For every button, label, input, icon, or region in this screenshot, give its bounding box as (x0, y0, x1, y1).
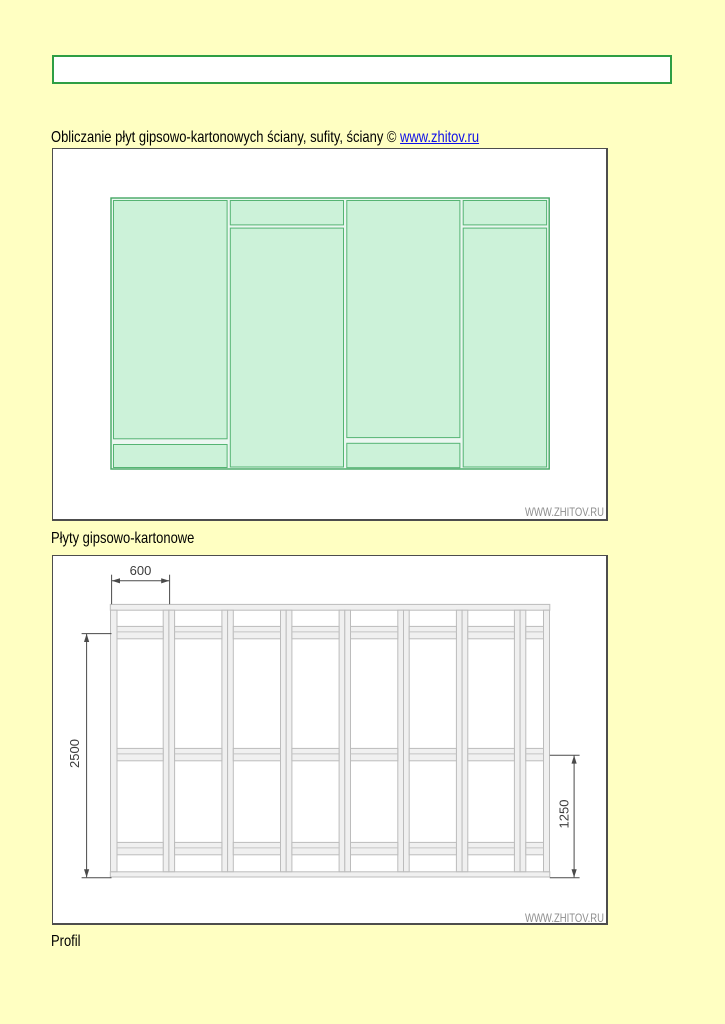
svg-text:WWW.ZHITOV.RU: WWW.ZHITOV.RU (525, 911, 604, 925)
svg-text:1250: 1250 (557, 800, 572, 829)
svg-text:WWW.ZHITOV.RU: WWW.ZHITOV.RU (525, 505, 604, 519)
svg-text:600: 600 (130, 563, 152, 578)
svg-text:2500: 2500 (67, 739, 82, 768)
